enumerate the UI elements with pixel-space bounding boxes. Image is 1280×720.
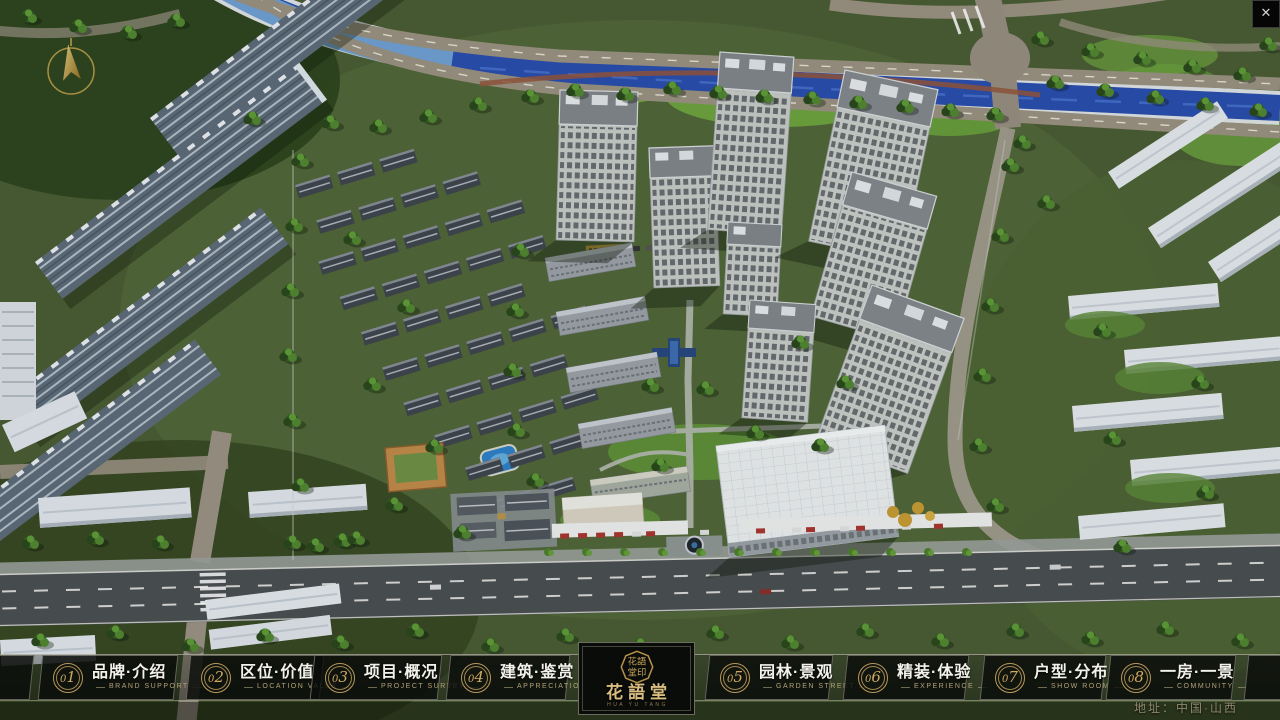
item-04-badge: 04 — [461, 663, 491, 693]
item-05-badge: 05 — [720, 663, 750, 693]
svg-text:花語: 花語 — [627, 655, 646, 667]
nav-item-label: 一房·一景 — [1160, 664, 1251, 682]
item-03-badge: 03 — [325, 663, 355, 693]
nav-item-label: 精装·体验 — [897, 664, 991, 682]
nav-item-location-value[interactable]: 02 区位·价值LOCATION VALUE — [186, 655, 325, 700]
item-02-badge: 02 — [201, 663, 231, 693]
seal-emblem-icon: 花語 堂印 — [620, 650, 654, 684]
nav-item-brand-intro[interactable]: 01 品牌·介绍BRAND SUPPORT — [38, 655, 179, 700]
project-name-latin: HUA YU TANG — [605, 703, 668, 708]
aerial-masterplan-rendering — [0, 0, 1280, 720]
address-text: 地址：中国·山西 — [1134, 699, 1238, 716]
nav-item-architecture[interactable]: 04 建筑·鉴赏APPRECIATION — [446, 655, 571, 700]
nav-item-sublabel: COMMUNITY — [1160, 683, 1251, 691]
nav-item-project-survey[interactable]: 03 项目·概况PROJECT SURVEY — [310, 655, 443, 700]
item-07-badge: 07 — [995, 663, 1025, 693]
compass-north-indicator — [42, 38, 100, 100]
nav-panel-stub-left — [0, 655, 34, 700]
property-presentation-app: ✕ 01 品牌·介绍BRAND SUPPORT 02 区位·价值LOCATION… — [0, 0, 1280, 720]
nav-item-sublabel: EXPERIENCE — [897, 683, 991, 691]
svg-text:堂印: 堂印 — [627, 666, 646, 678]
nav-item-garden-landscape[interactable]: 05 园林·景观GARDEN STREET — [705, 655, 834, 700]
logo-panel[interactable]: 花語 堂印 花語堂 HUA YU TANG — [578, 642, 695, 715]
item-06-badge: 06 — [858, 663, 888, 693]
item-08-badge: 08 — [1121, 663, 1151, 693]
nav-item-room-view[interactable]: 08 一房·一景COMMUNITY — [1106, 655, 1237, 700]
nav-item-unit-distribution[interactable]: 07 户型·分布SHOW ROOM — [980, 655, 1107, 700]
nav-item-interior-experience[interactable]: 06 精装·体验EXPERIENCE — [843, 655, 970, 700]
nav-panel-stub-right — [1244, 655, 1280, 700]
close-button[interactable]: ✕ — [1252, 0, 1280, 28]
item-01-badge: 01 — [53, 663, 83, 693]
project-name: 花語堂 — [601, 685, 672, 702]
